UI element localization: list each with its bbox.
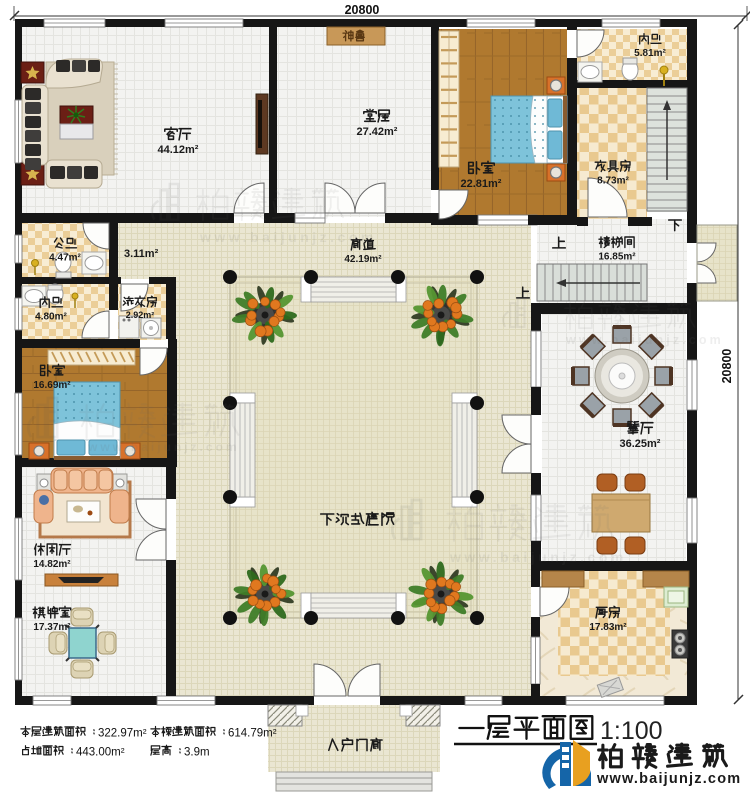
svg-text:4.47m²: 4.47m² (49, 253, 81, 264)
svg-text:17.37m²: 17.37m² (33, 622, 71, 633)
svg-text:www.baijunjz.com: www.baijunjz.com (87, 440, 240, 454)
svg-text:36.25m²: 36.25m² (620, 438, 661, 450)
svg-text:20800: 20800 (345, 3, 380, 17)
svg-text:443.00m²: 443.00m² (76, 747, 125, 759)
svg-text:20800: 20800 (720, 349, 734, 384)
svg-text:16.69m²: 16.69m² (33, 380, 71, 391)
svg-text:4.80m²: 4.80m² (35, 312, 67, 323)
svg-text:3.9m: 3.9m (184, 747, 210, 759)
svg-text:322.97m²: 322.97m² (98, 728, 147, 740)
svg-text:27.42m²: 27.42m² (357, 126, 398, 138)
svg-text:14.82m²: 14.82m² (33, 559, 71, 570)
svg-text:www.baijunjz.com: www.baijunjz.com (565, 333, 724, 347)
svg-text:8.73m²: 8.73m² (597, 176, 629, 187)
svg-text:17.83m²: 17.83m² (589, 622, 627, 633)
svg-text:614.79m²: 614.79m² (228, 728, 277, 740)
svg-text:3.11m²: 3.11m² (124, 248, 159, 260)
svg-text:www.baijunjz.com: www.baijunjz.com (449, 549, 627, 565)
svg-text:www.baijunjz.com: www.baijunjz.com (199, 229, 377, 245)
svg-text:2.92m²: 2.92m² (126, 310, 155, 320)
svg-text:22.81m²: 22.81m² (461, 178, 502, 190)
svg-text:5.81m²: 5.81m² (634, 48, 666, 59)
svg-text:www.baijunjz.com: www.baijunjz.com (596, 771, 741, 787)
svg-text:44.12m²: 44.12m² (158, 144, 199, 156)
svg-text:16.85m²: 16.85m² (598, 252, 636, 263)
svg-text:1:100: 1:100 (600, 717, 663, 745)
svg-text:42.19m²: 42.19m² (344, 254, 382, 265)
